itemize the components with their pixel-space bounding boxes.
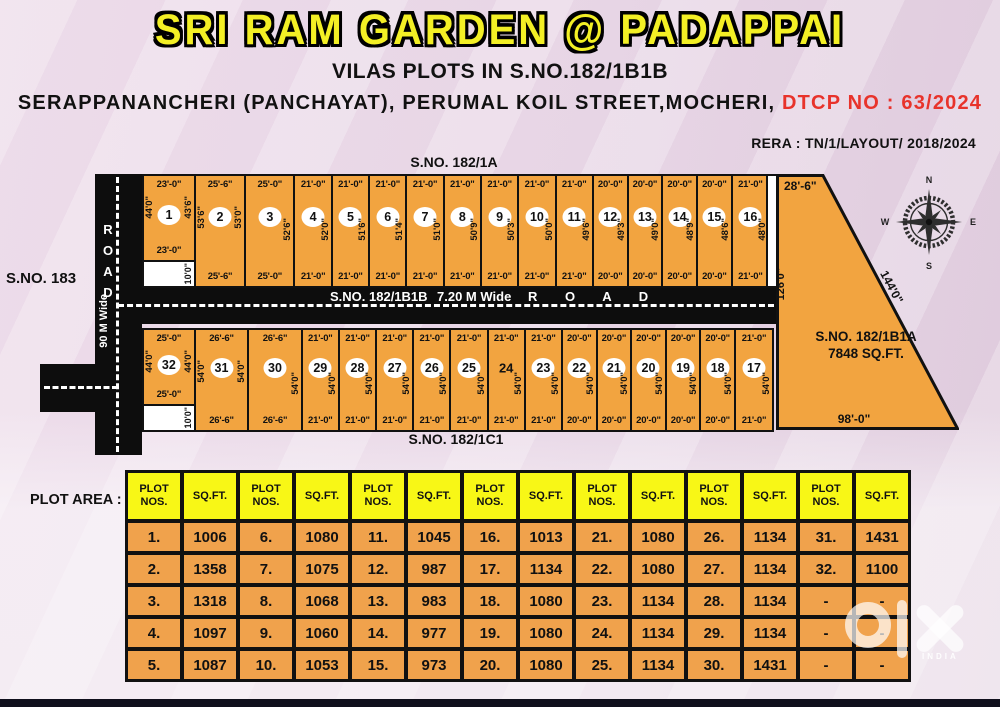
plot-right-dim: 51'6" (357, 218, 368, 241)
plot-right-dim: 50'9" (469, 218, 480, 241)
compass-e-label: E (970, 217, 976, 227)
table-header-cell: PLOT NOS. (798, 471, 854, 521)
east-parcel-survey: S.NO. 182/1B1A (786, 329, 946, 344)
plot-top-dim: 21'-0" (489, 330, 524, 348)
plot-top-dim: 23'-0" (144, 176, 194, 194)
plot-middle: 1050'0" (519, 194, 554, 271)
plot-middle: 452'0" (295, 194, 330, 271)
plot-middle: 2454'0" (489, 348, 524, 415)
plot-cell-5: 21'-0"551'6"21'-0" (331, 176, 368, 286)
plot-top-dim: 21'-0" (414, 330, 449, 348)
plot-top-dim: 21'-0" (557, 176, 592, 194)
plot-right-dim: 49'3" (616, 218, 627, 241)
plot-cell-32: 25'-0"44'0"3244'0"25'-0"10'0" (144, 330, 194, 430)
plot-top-dim: 20'-0" (598, 330, 631, 348)
plot-top-dim: 25'-6" (196, 176, 244, 194)
table-cell-plot-no: 2. (126, 553, 182, 585)
plot-middle: 950'3" (482, 194, 517, 271)
plot-right-dim: 54'0" (550, 372, 561, 395)
table-cell-sqft: 1080 (630, 553, 686, 585)
table-cell-sqft: 1053 (294, 649, 350, 681)
plot-bottom-dim: 21'-0" (370, 271, 405, 286)
plot-right-dim: 54'0" (619, 372, 630, 395)
table-cell-plot-no: 5. (126, 649, 182, 681)
plot-top-dim: 20'-0" (594, 176, 627, 194)
table-cell-plot-no: - (798, 649, 854, 681)
table-cell-plot-no: 12. (350, 553, 406, 585)
plot-cell-2: 25'-6"53'6"253'0"25'-6" (194, 176, 244, 286)
table-cell-plot-no: 24. (574, 617, 630, 649)
plot-bottom-dim: 21'-0" (333, 271, 368, 286)
plot-top-dim: 21'-0" (303, 330, 338, 348)
plot-right-dim: 54'0" (290, 372, 301, 395)
plot-cell-24: 21'-0"2454'0"21'-0" (487, 330, 524, 430)
plot-row-north: 23'-0"44'0"143'6"23'-0"10'0"25'-6"53'6"2… (142, 174, 770, 288)
road-letter: O (103, 243, 113, 258)
page-title: SRI RAM GARDEN @ PADAPPAI (0, 7, 1000, 55)
plot-left-dim: 44'0" (144, 350, 155, 373)
watermark-bar-shape (897, 600, 907, 658)
plot-right-dim: 54'0" (761, 372, 772, 395)
plot-middle: 1548'6" (698, 194, 731, 271)
address-text: SERAPPANANCHERI (PANCHAYAT), PERUMAL KOI… (18, 92, 775, 114)
table-cell-sqft: 1060 (294, 617, 350, 649)
table-cell-plot-no: 22. (574, 553, 630, 585)
table-cell-sqft: 1134 (742, 521, 798, 553)
table-cell-sqft: 987 (406, 553, 462, 585)
dtcp-number: DTCP NO : 63/2024 (782, 92, 982, 114)
plot-bottom-dim: 20'-0" (594, 271, 627, 286)
plot-right-dim: 54'0" (513, 372, 524, 395)
plot-top-dim: 21'-0" (340, 330, 375, 348)
plot-left-dim: 53'6" (196, 206, 207, 229)
plot-cell-16: 21'-0"1648'0"21'-0" (731, 176, 768, 286)
plot-cell-9: 21'-0"950'3"21'-0" (480, 176, 517, 286)
plot-cell-29: 21'-0"2954'0"21'-0" (301, 330, 338, 430)
plot-cell-28: 21'-0"2854'0"21'-0" (338, 330, 375, 430)
plot-cell-17: 21'-0"1754'0"21'-0" (734, 330, 772, 430)
road-letter: A (103, 264, 112, 279)
plot-notch-dim: 10'0" (183, 263, 193, 284)
bottom-bar (0, 699, 1000, 707)
plot-cell-25: 21'-0"2554'0"21'-0" (449, 330, 486, 430)
plot-middle: 44'0"3244'0" (144, 348, 194, 389)
plot-top-dim: 21'-0" (482, 176, 517, 194)
plot-cell-31: 26'-6"54'0"3154'0"26'-6" (194, 330, 247, 430)
east-parcel-top-dim: 28'-6" (784, 179, 817, 193)
plot-area-table: PLOT NOS.SQ.FT.PLOT NOS.SQ.FT.PLOT NOS.S… (125, 470, 911, 682)
plot-cell-10: 21'-0"1050'0"21'-0" (517, 176, 554, 286)
table-header-cell: PLOT NOS. (126, 471, 182, 521)
plot-right-dim: 54'0" (236, 360, 247, 383)
plot-bottom-dim: 21'-0" (482, 271, 517, 286)
table-cell-plot-no: 31. (798, 521, 854, 553)
plot-cell-12: 20'-0"1249'3"20'-0" (592, 176, 627, 286)
table-cell-plot-no: - (798, 585, 854, 617)
plot-bottom-dim: 20'-0" (667, 415, 700, 430)
west-road-width-label: 90 M Wide (98, 294, 110, 348)
watermark-caption: INDIA (922, 652, 959, 661)
plot-bottom-dim: 21'-0" (736, 415, 772, 430)
table-cell-sqft: 1134 (742, 617, 798, 649)
road-center-dash-stub (44, 386, 118, 389)
plot-number: 3 (258, 207, 281, 227)
plot-right-dim: 54'0" (688, 372, 699, 395)
plot-middle: 850'9" (445, 194, 480, 271)
page-subtitle: VILAS PLOTS IN S.NO.182/1B1B (0, 60, 1000, 84)
table-cell-sqft: 1431 (854, 521, 910, 553)
plot-bottom-dim: 20'-0" (632, 415, 665, 430)
table-header-cell: SQ.FT. (854, 471, 910, 521)
compass-rose-icon: N S W E (877, 170, 981, 274)
table-cell-sqft: 1006 (182, 521, 238, 553)
east-parcel-bottom-dim: 98'-0" (804, 412, 904, 426)
plot-cell-30: 26'-6"3054'0"26'-6" (247, 330, 300, 430)
plot-middle: 2954'0" (303, 348, 338, 415)
table-cell-plot-no: 21. (574, 521, 630, 553)
table-cell-plot-no: 17. (462, 553, 518, 585)
table-cell-plot-no: 26. (686, 521, 742, 553)
plot-right-dim: 48'9" (685, 218, 696, 241)
plot-row-south: 25'-0"44'0"3244'0"25'-0"10'0"26'-6"54'0"… (142, 328, 774, 432)
plot-middle: 1954'0" (667, 348, 700, 415)
table-cell-sqft: 1134 (518, 553, 574, 585)
plot-right-dim: 52'6" (282, 218, 293, 241)
plot-middle: 2654'0" (414, 348, 449, 415)
plot-number: 32 (157, 355, 180, 375)
table-header-cell: PLOT NOS. (574, 471, 630, 521)
table-cell-plot-no: 3. (126, 585, 182, 617)
plot-top-dim: 20'-0" (663, 176, 696, 194)
table-cell-sqft: 1068 (294, 585, 350, 617)
plot-middle: 751'0" (407, 194, 442, 271)
table-cell-plot-no: 20. (462, 649, 518, 681)
plot-bottom-dim: 25'-6" (196, 271, 244, 286)
plot-top-dim: 21'-0" (445, 176, 480, 194)
plot-middle: 352'6" (246, 194, 293, 271)
table-cell-plot-no: 14. (350, 617, 406, 649)
table-cell-plot-no: 13. (350, 585, 406, 617)
plot-cell-4: 21'-0"452'0"21'-0" (293, 176, 330, 286)
table-header-cell: SQ.FT. (406, 471, 462, 521)
table-cell-sqft: 1013 (518, 521, 574, 553)
plot-right-dim: 44'0" (183, 350, 194, 373)
plot-right-dim: 54'0" (476, 372, 487, 395)
table-cell-sqft: 1134 (630, 617, 686, 649)
road-letter: R (103, 222, 112, 237)
plot-middle: 3054'0" (249, 348, 300, 415)
main-road-width-label: 7.20 M Wide (437, 289, 511, 304)
plot-top-dim: 21'-0" (519, 176, 554, 194)
table-cell-sqft: 1134 (742, 553, 798, 585)
plot-bottom-dim: 21'-0" (414, 415, 449, 430)
table-cell-sqft: 1318 (182, 585, 238, 617)
plot-top-dim: 21'-0" (736, 330, 772, 348)
table-cell-sqft: 1080 (294, 521, 350, 553)
plot-notch-dim: 10'0" (183, 407, 193, 428)
table-cell-plot-no: 8. (238, 585, 294, 617)
plot-cell-23: 21'-0"2354'0"21'-0" (524, 330, 561, 430)
plot-middle: 54'0"3154'0" (196, 348, 247, 415)
table-cell-plot-no: 28. (686, 585, 742, 617)
plot-middle: 1754'0" (736, 348, 772, 415)
plot-bottom-dim: 20'-0" (598, 415, 631, 430)
plot-bottom-dim: 25'-0" (144, 389, 194, 404)
plot-bottom-dim: 21'-0" (303, 415, 338, 430)
table-cell-plot-no: 16. (462, 521, 518, 553)
plot-number: 31 (210, 358, 233, 378)
plot-cell-18: 20'-0"1854'0"20'-0" (699, 330, 734, 430)
plot-number: 30 (263, 358, 286, 378)
table-cell-sqft: 1134 (742, 585, 798, 617)
table-cell-sqft: 1045 (406, 521, 462, 553)
plot-cell-15: 20'-0"1548'6"20'-0" (696, 176, 731, 286)
plot-middle: 1648'0" (733, 194, 768, 271)
plot-middle: 651'4" (370, 194, 405, 271)
plot-bottom-dim: 20'-0" (698, 271, 731, 286)
table-cell-sqft: 1134 (630, 649, 686, 681)
plot-cell-8: 21'-0"850'9"21'-0" (443, 176, 480, 286)
table-cell-plot-no: 27. (686, 553, 742, 585)
plot-middle: 2154'0" (598, 348, 631, 415)
table-cell-plot-no: 1. (126, 521, 182, 553)
plot-right-dim: 50'0" (544, 218, 555, 241)
table-cell-plot-no: 10. (238, 649, 294, 681)
plot-number: 1 (157, 205, 180, 225)
plot-middle: 1249'3" (594, 194, 627, 271)
plot-middle: 2054'0" (632, 348, 665, 415)
compass-n-label: N (926, 175, 933, 185)
plot-right-dim: 54'0" (585, 372, 596, 395)
west-boundary-label: S.NO. 183 (6, 270, 76, 287)
table-cell-plot-no: 29. (686, 617, 742, 649)
plot-bottom-dim: 20'-0" (563, 415, 596, 430)
plot-top-dim: 25'-0" (144, 330, 194, 348)
plot-right-dim: 49'0" (650, 218, 661, 241)
table-cell-plot-no: 7. (238, 553, 294, 585)
plot-middle: 2354'0" (526, 348, 561, 415)
table-cell-sqft: 1080 (630, 521, 686, 553)
plot-bottom-dim: 21'-0" (377, 415, 412, 430)
plot-top-dim: 21'-0" (526, 330, 561, 348)
plot-cell-21: 20'-0"2154'0"20'-0" (596, 330, 631, 430)
table-cell-plot-no: 4. (126, 617, 182, 649)
address-line: SERAPPANANCHERI (PANCHAYAT), PERUMAL KOI… (0, 92, 1000, 115)
plot-top-dim: 21'-0" (370, 176, 405, 194)
table-cell-sqft: 973 (406, 649, 462, 681)
plot-middle: 2254'0" (563, 348, 596, 415)
table-cell-sqft: 1358 (182, 553, 238, 585)
plot-right-dim: 48'6" (720, 218, 731, 241)
plot-middle: 2754'0" (377, 348, 412, 415)
plot-right-dim: 51'0" (432, 218, 443, 241)
plot-right-dim: 49'6" (581, 218, 592, 241)
plot-left-dim: 44'0" (144, 196, 155, 219)
table-cell-sqft: 1100 (854, 553, 910, 585)
table-header-cell: PLOT NOS. (350, 471, 406, 521)
plot-cell-6: 21'-0"651'4"21'-0" (368, 176, 405, 286)
table-header-cell: SQ.FT. (630, 471, 686, 521)
plot-bottom-dim: 21'-0" (557, 271, 592, 286)
plot-notch: 10'0" (144, 404, 194, 430)
plot-top-dim: 25'-0" (246, 176, 293, 194)
plot-bottom-dim: 21'-0" (489, 415, 524, 430)
plot-area-label: PLOT AREA : (30, 492, 122, 508)
watermark-o-shape (845, 602, 891, 648)
plot-middle: 1448'9" (663, 194, 696, 271)
plot-cell-11: 21'-0"1149'6"21'-0" (555, 176, 592, 286)
table-cell-sqft: 1431 (742, 649, 798, 681)
plot-top-dim: 20'-0" (701, 330, 734, 348)
plot-right-dim: 54'0" (401, 372, 412, 395)
plot-cell-19: 20'-0"1954'0"20'-0" (665, 330, 700, 430)
table-cell-sqft: 1080 (518, 585, 574, 617)
plot-cell-3: 25'-0"352'6"25'-0" (244, 176, 293, 286)
plot-middle: 53'6"253'0" (196, 194, 244, 271)
plot-cell-20: 20'-0"2054'0"20'-0" (630, 330, 665, 430)
plot-bottom-dim: 21'-0" (451, 415, 486, 430)
plot-bottom-dim: 25'-0" (246, 271, 293, 286)
plot-top-dim: 21'-0" (295, 176, 330, 194)
table-cell-sqft: 983 (406, 585, 462, 617)
plot-middle: 1149'6" (557, 194, 592, 271)
table-cell-sqft: 1080 (518, 649, 574, 681)
table-cell-plot-no: 25. (574, 649, 630, 681)
plot-right-dim: 43'6" (183, 196, 194, 219)
layout-poster: SRI RAM GARDEN @ PADAPPAI VILAS PLOTS IN… (0, 0, 1000, 707)
compass-w-label: W (881, 217, 890, 227)
table-cell-plot-no: 11. (350, 521, 406, 553)
east-parcel-left-dim: 126'0" (775, 268, 787, 300)
table-header-cell: SQ.FT. (182, 471, 238, 521)
main-road-survey: S.NO. 182/1B1B (330, 289, 428, 304)
plot-middle: 2554'0" (451, 348, 486, 415)
table-cell-plot-no: 18. (462, 585, 518, 617)
road-center-dash-vertical (116, 177, 119, 452)
plot-bottom-dim: 21'-0" (407, 271, 442, 286)
plot-top-dim: 20'-0" (667, 330, 700, 348)
table-cell-plot-no: 6. (238, 521, 294, 553)
plot-right-dim: 53'0" (233, 206, 244, 229)
table-cell-sqft: 1080 (518, 617, 574, 649)
plot-right-dim: 54'0" (723, 372, 734, 395)
plot-bottom-dim: 20'-0" (701, 415, 734, 430)
plot-cell-14: 20'-0"1448'9"20'-0" (661, 176, 696, 286)
plot-number: 2 (209, 207, 232, 227)
plot-top-dim: 20'-0" (632, 330, 665, 348)
plot-cell-26: 21'-0"2654'0"21'-0" (412, 330, 449, 430)
plot-notch: 10'0" (144, 260, 194, 286)
table-cell-sqft: 977 (406, 617, 462, 649)
plot-right-dim: 54'0" (327, 372, 338, 395)
plot-left-dim: 54'0" (196, 360, 207, 383)
plot-right-dim: 54'0" (438, 372, 449, 395)
table-cell-plot-no: 30. (686, 649, 742, 681)
plot-top-dim: 21'-0" (377, 330, 412, 348)
table-cell-plot-no: 9. (238, 617, 294, 649)
plot-middle: 1854'0" (701, 348, 734, 415)
table-header-cell: PLOT NOS. (238, 471, 294, 521)
table-cell-plot-no: 32. (798, 553, 854, 585)
table-cell-sqft: 1097 (182, 617, 238, 649)
plot-cell-22: 20'-0"2254'0"20'-0" (561, 330, 596, 430)
plot-bottom-dim: 20'-0" (663, 271, 696, 286)
plot-bottom-dim: 21'-0" (519, 271, 554, 286)
plot-cell-27: 21'-0"2754'0"21'-0" (375, 330, 412, 430)
plot-right-dim: 54'0" (654, 372, 665, 395)
table-cell-plot-no: 19. (462, 617, 518, 649)
plot-middle: 551'6" (333, 194, 368, 271)
east-parcel-area: 7848 SQ.FT. (786, 346, 946, 361)
road-center-dash-main (118, 304, 774, 307)
plot-bottom-dim: 21'-0" (340, 415, 375, 430)
plot-top-dim: 20'-0" (629, 176, 662, 194)
table-cell-sqft: 1075 (294, 553, 350, 585)
plot-top-dim: 26'-6" (249, 330, 300, 348)
plot-bottom-dim: 21'-0" (526, 415, 561, 430)
plot-middle: 1349'0" (629, 194, 662, 271)
plot-number: 24 (499, 361, 513, 376)
plot-cell-1: 23'-0"44'0"143'6"23'-0"10'0" (144, 176, 194, 286)
plot-top-dim: 20'-0" (698, 176, 731, 194)
plot-bottom-dim: 21'-0" (733, 271, 768, 286)
south-boundary-label: S.NO. 182/1C1 (142, 431, 770, 447)
table-header-cell: SQ.FT. (294, 471, 350, 521)
plot-top-dim: 20'-0" (563, 330, 596, 348)
rera-number: RERA : TN/1/LAYOUT/ 2018/2024 (751, 135, 976, 151)
plot-top-dim: 21'-0" (451, 330, 486, 348)
table-cell-plot-no: 15. (350, 649, 406, 681)
plot-bottom-dim: 26'-6" (196, 415, 247, 430)
table-cell-plot-no: 23. (574, 585, 630, 617)
table-header-cell: PLOT NOS. (462, 471, 518, 521)
plot-top-dim: 21'-0" (733, 176, 768, 194)
plot-bottom-dim: 21'-0" (295, 271, 330, 286)
table-header-cell: SQ.FT. (518, 471, 574, 521)
plot-cell-7: 21'-0"751'0"21'-0" (405, 176, 442, 286)
table-header-cell: PLOT NOS. (686, 471, 742, 521)
plot-top-dim: 26'-6" (196, 330, 247, 348)
plot-top-dim: 21'-0" (333, 176, 368, 194)
plot-bottom-dim: 26'-6" (249, 415, 300, 430)
plot-middle: 2854'0" (340, 348, 375, 415)
plot-top-dim: 21'-0" (407, 176, 442, 194)
table-cell-sqft: 1087 (182, 649, 238, 681)
plot-middle: 44'0"143'6" (144, 194, 194, 245)
plot-cell-13: 20'-0"1349'0"20'-0" (627, 176, 662, 286)
plot-right-dim: 52'0" (320, 218, 331, 241)
table-header-cell: SQ.FT. (742, 471, 798, 521)
plot-bottom-dim: 21'-0" (445, 271, 480, 286)
plot-bottom-dim: 20'-0" (629, 271, 662, 286)
table-cell-sqft: 1134 (630, 585, 686, 617)
main-road-name: R O A D (528, 289, 660, 304)
plot-right-dim: 50'3" (506, 218, 517, 241)
plot-right-dim: 51'4" (394, 218, 405, 241)
plot-right-dim: 54'0" (364, 372, 375, 395)
plot-bottom-dim: 23'-0" (144, 245, 194, 260)
north-boundary-label: S.NO. 182/1A (142, 154, 766, 170)
compass-s-label: S (926, 261, 932, 271)
